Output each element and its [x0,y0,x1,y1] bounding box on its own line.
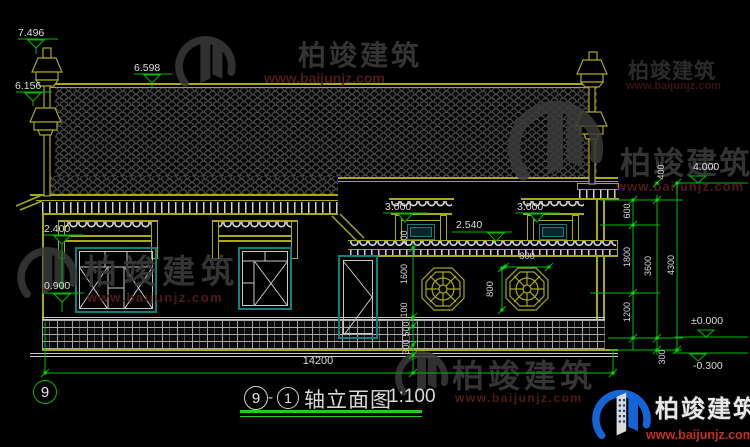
axis-bubble-9: 9 [33,380,57,404]
elevation-0000: ±0.000 [691,316,723,327]
elevation-0900: 0.900 [44,281,70,292]
dim-100-top: 100 [399,220,409,256]
dim-300-base: 300 [657,339,667,375]
elevation-2540: 2.540 [456,220,482,231]
elevation-2400: 2.400 [44,224,70,235]
watermark-url-corner: www.baijunjz.com [646,428,750,442]
dim-1200: 1200 [622,294,632,330]
title-axis-b: 1 [277,387,299,409]
dim-3600: 3600 [643,248,653,284]
title-underline [240,410,422,413]
dimension-linework [0,0,750,447]
dim-800-height: 800 [486,271,496,307]
elevation-neg0300: -0.300 [693,361,723,372]
dim-1800: 1800 [622,239,632,275]
elevation-6156: 6.156 [15,81,41,92]
dim-400: 400 [656,154,666,190]
drawing-scale: 1:100 [388,386,436,408]
title-axis-a: 9 [244,386,268,410]
dim-4300: 4300 [666,247,676,283]
elevation-3000-a: 3.000 [385,202,411,213]
elevation-7496: 7.496 [18,28,44,39]
title-separator: - [268,389,273,406]
cad-elevation-drawing: 柏竣建筑 www.baijunjz.com 柏竣建筑 www.baijunjz.… [0,0,750,447]
watermark-brand-corner: 柏竣建筑 [655,389,750,424]
dim-1600: 1600 [399,256,409,292]
elevation-6598: 6.598 [134,63,160,74]
elevation-4000: 4.000 [693,162,719,173]
dim-14200: 14200 [292,356,344,366]
dim-600: 600 [622,193,632,229]
dim-800-width: 800 [512,252,542,262]
dimension-lines [16,39,748,377]
dim-300-door: 300 [401,329,411,365]
title-underline-2 [240,416,422,417]
dimension-tick-dots [44,182,679,375]
elevation-3000-b: 3.000 [517,202,543,213]
